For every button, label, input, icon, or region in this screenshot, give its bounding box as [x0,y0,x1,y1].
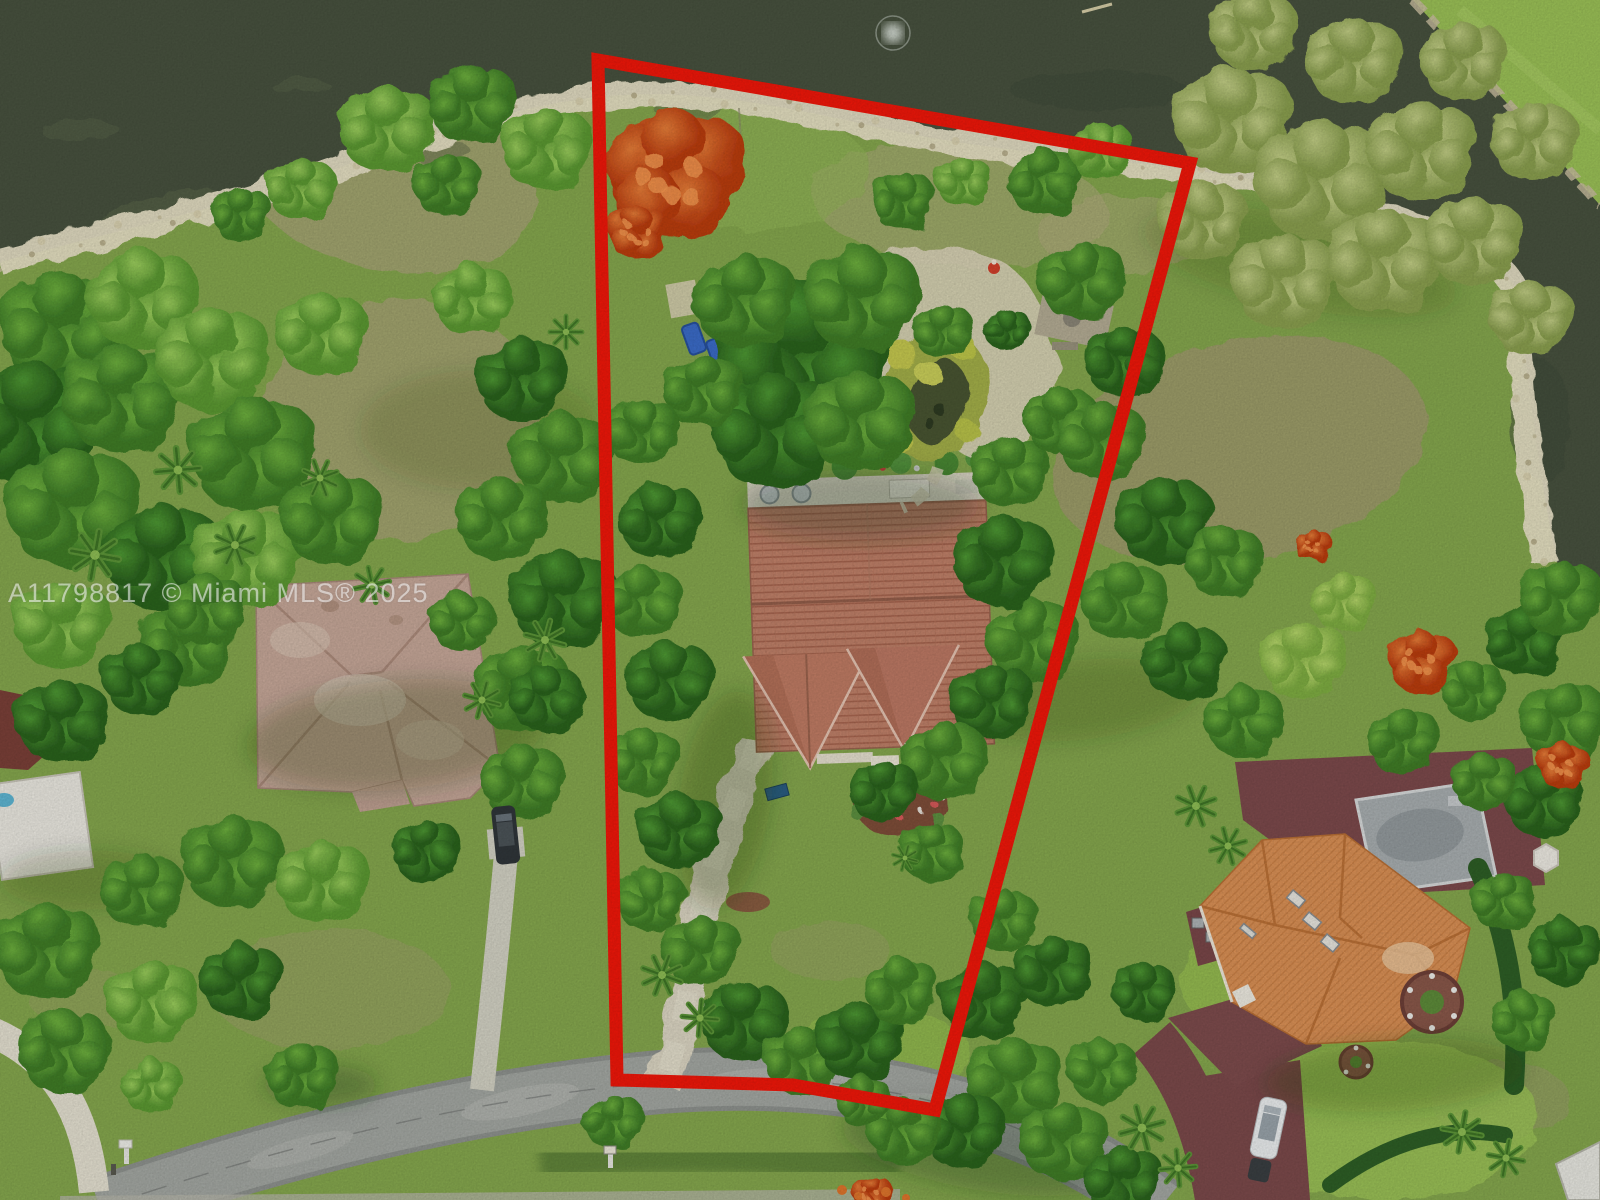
photo-grain [0,0,1600,1200]
aerial-photo: A11798817 © Miami MLS® 2025 [0,0,1600,1200]
aerial-photo-canvas [0,0,1600,1200]
